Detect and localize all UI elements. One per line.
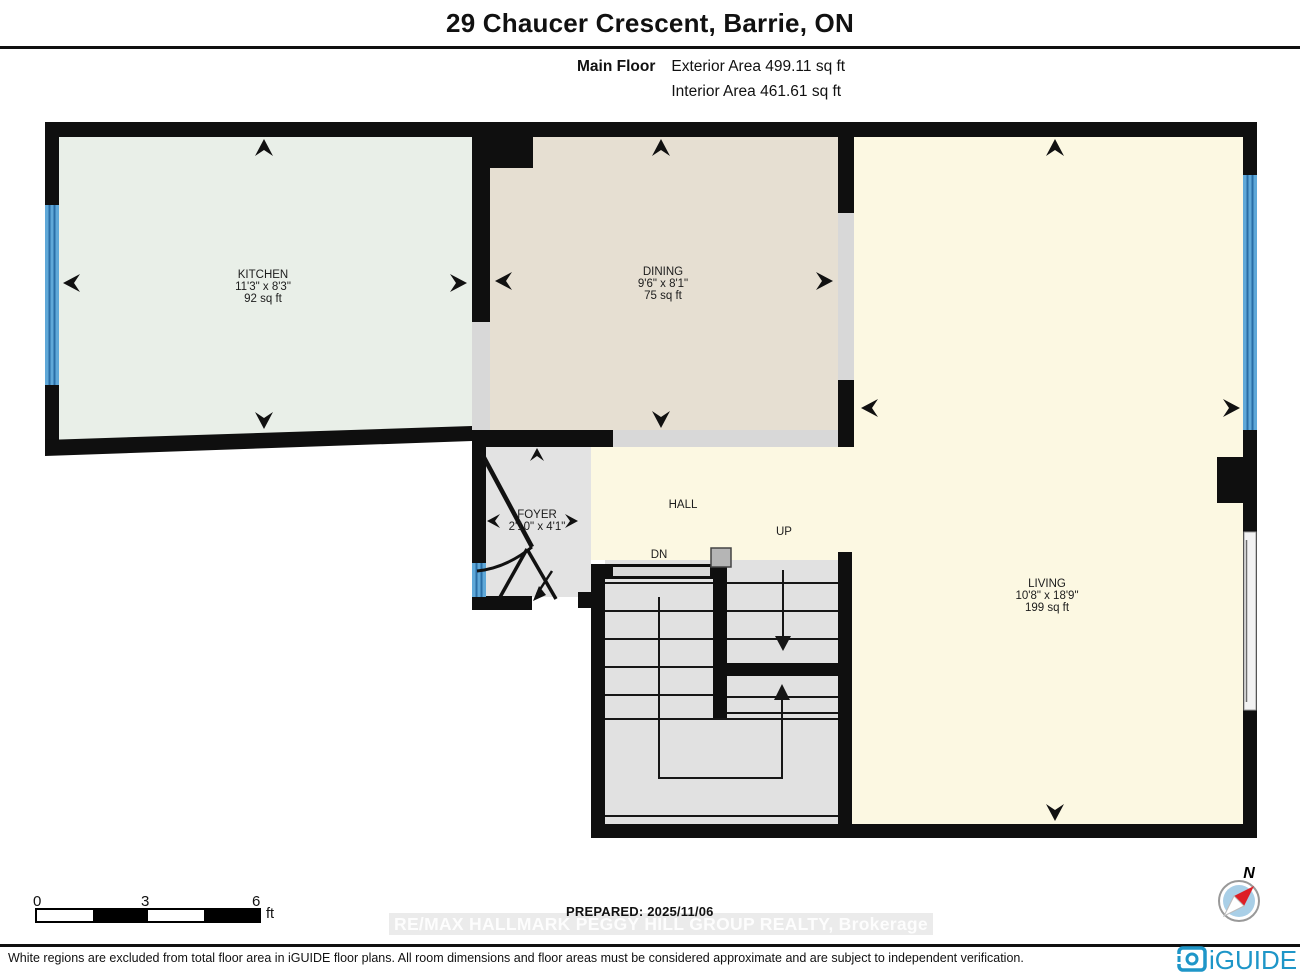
wall-top: [45, 122, 1257, 137]
scale-segment: [148, 910, 204, 921]
dining-living-opening: [838, 213, 854, 380]
scale-unit-label: ft: [266, 906, 274, 922]
compass-north-label: N: [1243, 865, 1255, 882]
wall-dining-living-lower: [838, 380, 854, 447]
wall-stair-left: [591, 564, 605, 824]
wall-dining-notch: [490, 137, 533, 168]
dining-area: 75 sq ft: [644, 290, 683, 302]
iguide-logo-notch-bar: [1178, 956, 1181, 962]
iguide-logo-circle: [1187, 954, 1197, 964]
hall-floor: [591, 447, 852, 560]
scale-segment: [37, 910, 93, 921]
wall-stair-divider: [713, 564, 727, 720]
living-window: [1243, 175, 1257, 430]
scale-segment: [204, 910, 260, 921]
wall-stair-mid: [727, 663, 838, 676]
footer-disclaimer: White regions are excluded from total fl…: [8, 951, 1024, 965]
living-dimensions: 10'8" x 18'9": [1015, 590, 1078, 602]
compass-icon: N: [1219, 865, 1259, 921]
foyer-window: [472, 563, 486, 597]
scale-bar: [35, 908, 261, 923]
wall-dining-living-upper: [838, 122, 854, 213]
dining-hall-opening: [613, 430, 838, 447]
stairs-down-label: DN: [651, 549, 668, 561]
foyer-label: FOYER: [517, 509, 557, 521]
footer-divider: [0, 944, 1300, 947]
kitchen-dining-opening: [472, 322, 490, 430]
kitchen-label: KITCHEN: [238, 269, 288, 281]
wall-kitchen-dining: [472, 122, 490, 322]
kitchen-dimensions: 11'3" x 8'3": [235, 281, 291, 293]
room-floors: [58, 137, 1243, 824]
scale-segment: [93, 910, 149, 921]
stair-landing-strip: [613, 567, 710, 576]
dining-dimensions: 9'6" x 8'1": [638, 278, 688, 290]
living-patio-door: [1244, 532, 1256, 710]
living-floor: [852, 137, 1243, 824]
wall-foyer-bottom: [472, 596, 532, 610]
iguide-logo-text: iGUIDE: [1209, 945, 1297, 973]
iguide-logo-square: [1179, 948, 1205, 970]
living-label: LIVING: [1028, 578, 1066, 590]
wall-foyer-top: [472, 430, 613, 447]
living-area: 199 sq ft: [1025, 602, 1070, 614]
dining-label: DINING: [643, 266, 683, 278]
stairs-up-label: UP: [776, 526, 792, 538]
prepared-date: PREPARED: 2025/11/06: [566, 904, 714, 919]
foyer-dimensions: 2'10" x 4'1": [509, 521, 566, 533]
kitchen-area: 92 sq ft: [244, 293, 283, 305]
hall-label: HALL: [669, 499, 698, 511]
wall-chimney: [1217, 457, 1257, 503]
iguide-logo: iGUIDE: [1176, 944, 1300, 973]
stair-newel-post: [711, 548, 731, 567]
kitchen-window: [45, 205, 59, 385]
wall-stair-right: [838, 552, 852, 824]
wall-bottom: [591, 824, 1257, 838]
floor-plan: KITCHEN 11'3" x 8'3" 92 sq ft DINING 9'6…: [0, 0, 1300, 973]
